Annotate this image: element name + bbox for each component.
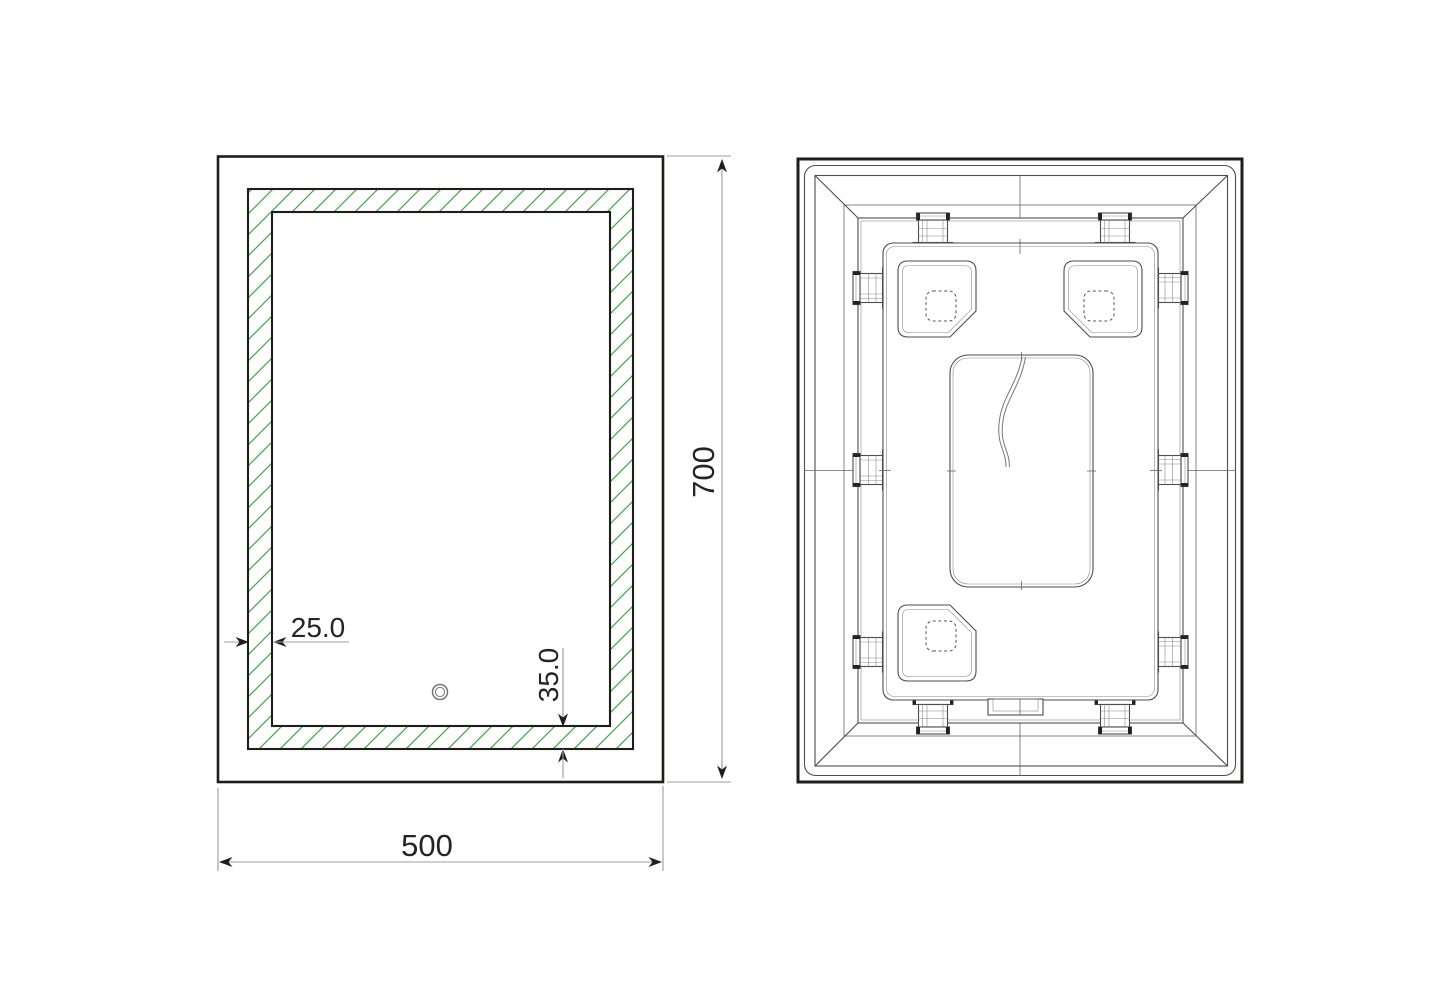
- dimension-label-overall-width: 500: [401, 828, 453, 863]
- dimension-label-border-width: 25.0: [291, 612, 346, 643]
- dimension-label-sensor-offset: 35.0: [533, 648, 564, 703]
- tab-outer: [988, 699, 1043, 715]
- front-view: 25.0 35.0 700 500: [218, 156, 731, 871]
- technical-drawing-canvas: 25.0 35.0 700 500: [0, 0, 1445, 1005]
- led-illumination-band-hatch: [248, 189, 633, 749]
- dimension-border-width: 25.0: [224, 612, 349, 647]
- mirror-outer-frame: [218, 157, 663, 783]
- technical-drawing-page: 25.0 35.0 700 500: [0, 0, 1445, 1005]
- back-view: [798, 159, 1242, 782]
- touch-sensor: [433, 685, 448, 700]
- dimension-overall-height: 700: [667, 156, 731, 782]
- touch-sensor-outer-ring: [433, 685, 448, 700]
- spacer-bottom-left: [913, 699, 953, 734]
- dimension-overall-width: 500: [218, 786, 663, 871]
- touch-sensor-inner-ring: [435, 687, 444, 696]
- bottom-connector-tab: [988, 699, 1043, 715]
- dimension-label-overall-height: 700: [686, 446, 721, 498]
- dimension-sensor-offset: 35.0: [533, 648, 568, 778]
- spacer-bottom-right: [1095, 699, 1135, 734]
- led-band-outer-edge: [248, 189, 633, 749]
